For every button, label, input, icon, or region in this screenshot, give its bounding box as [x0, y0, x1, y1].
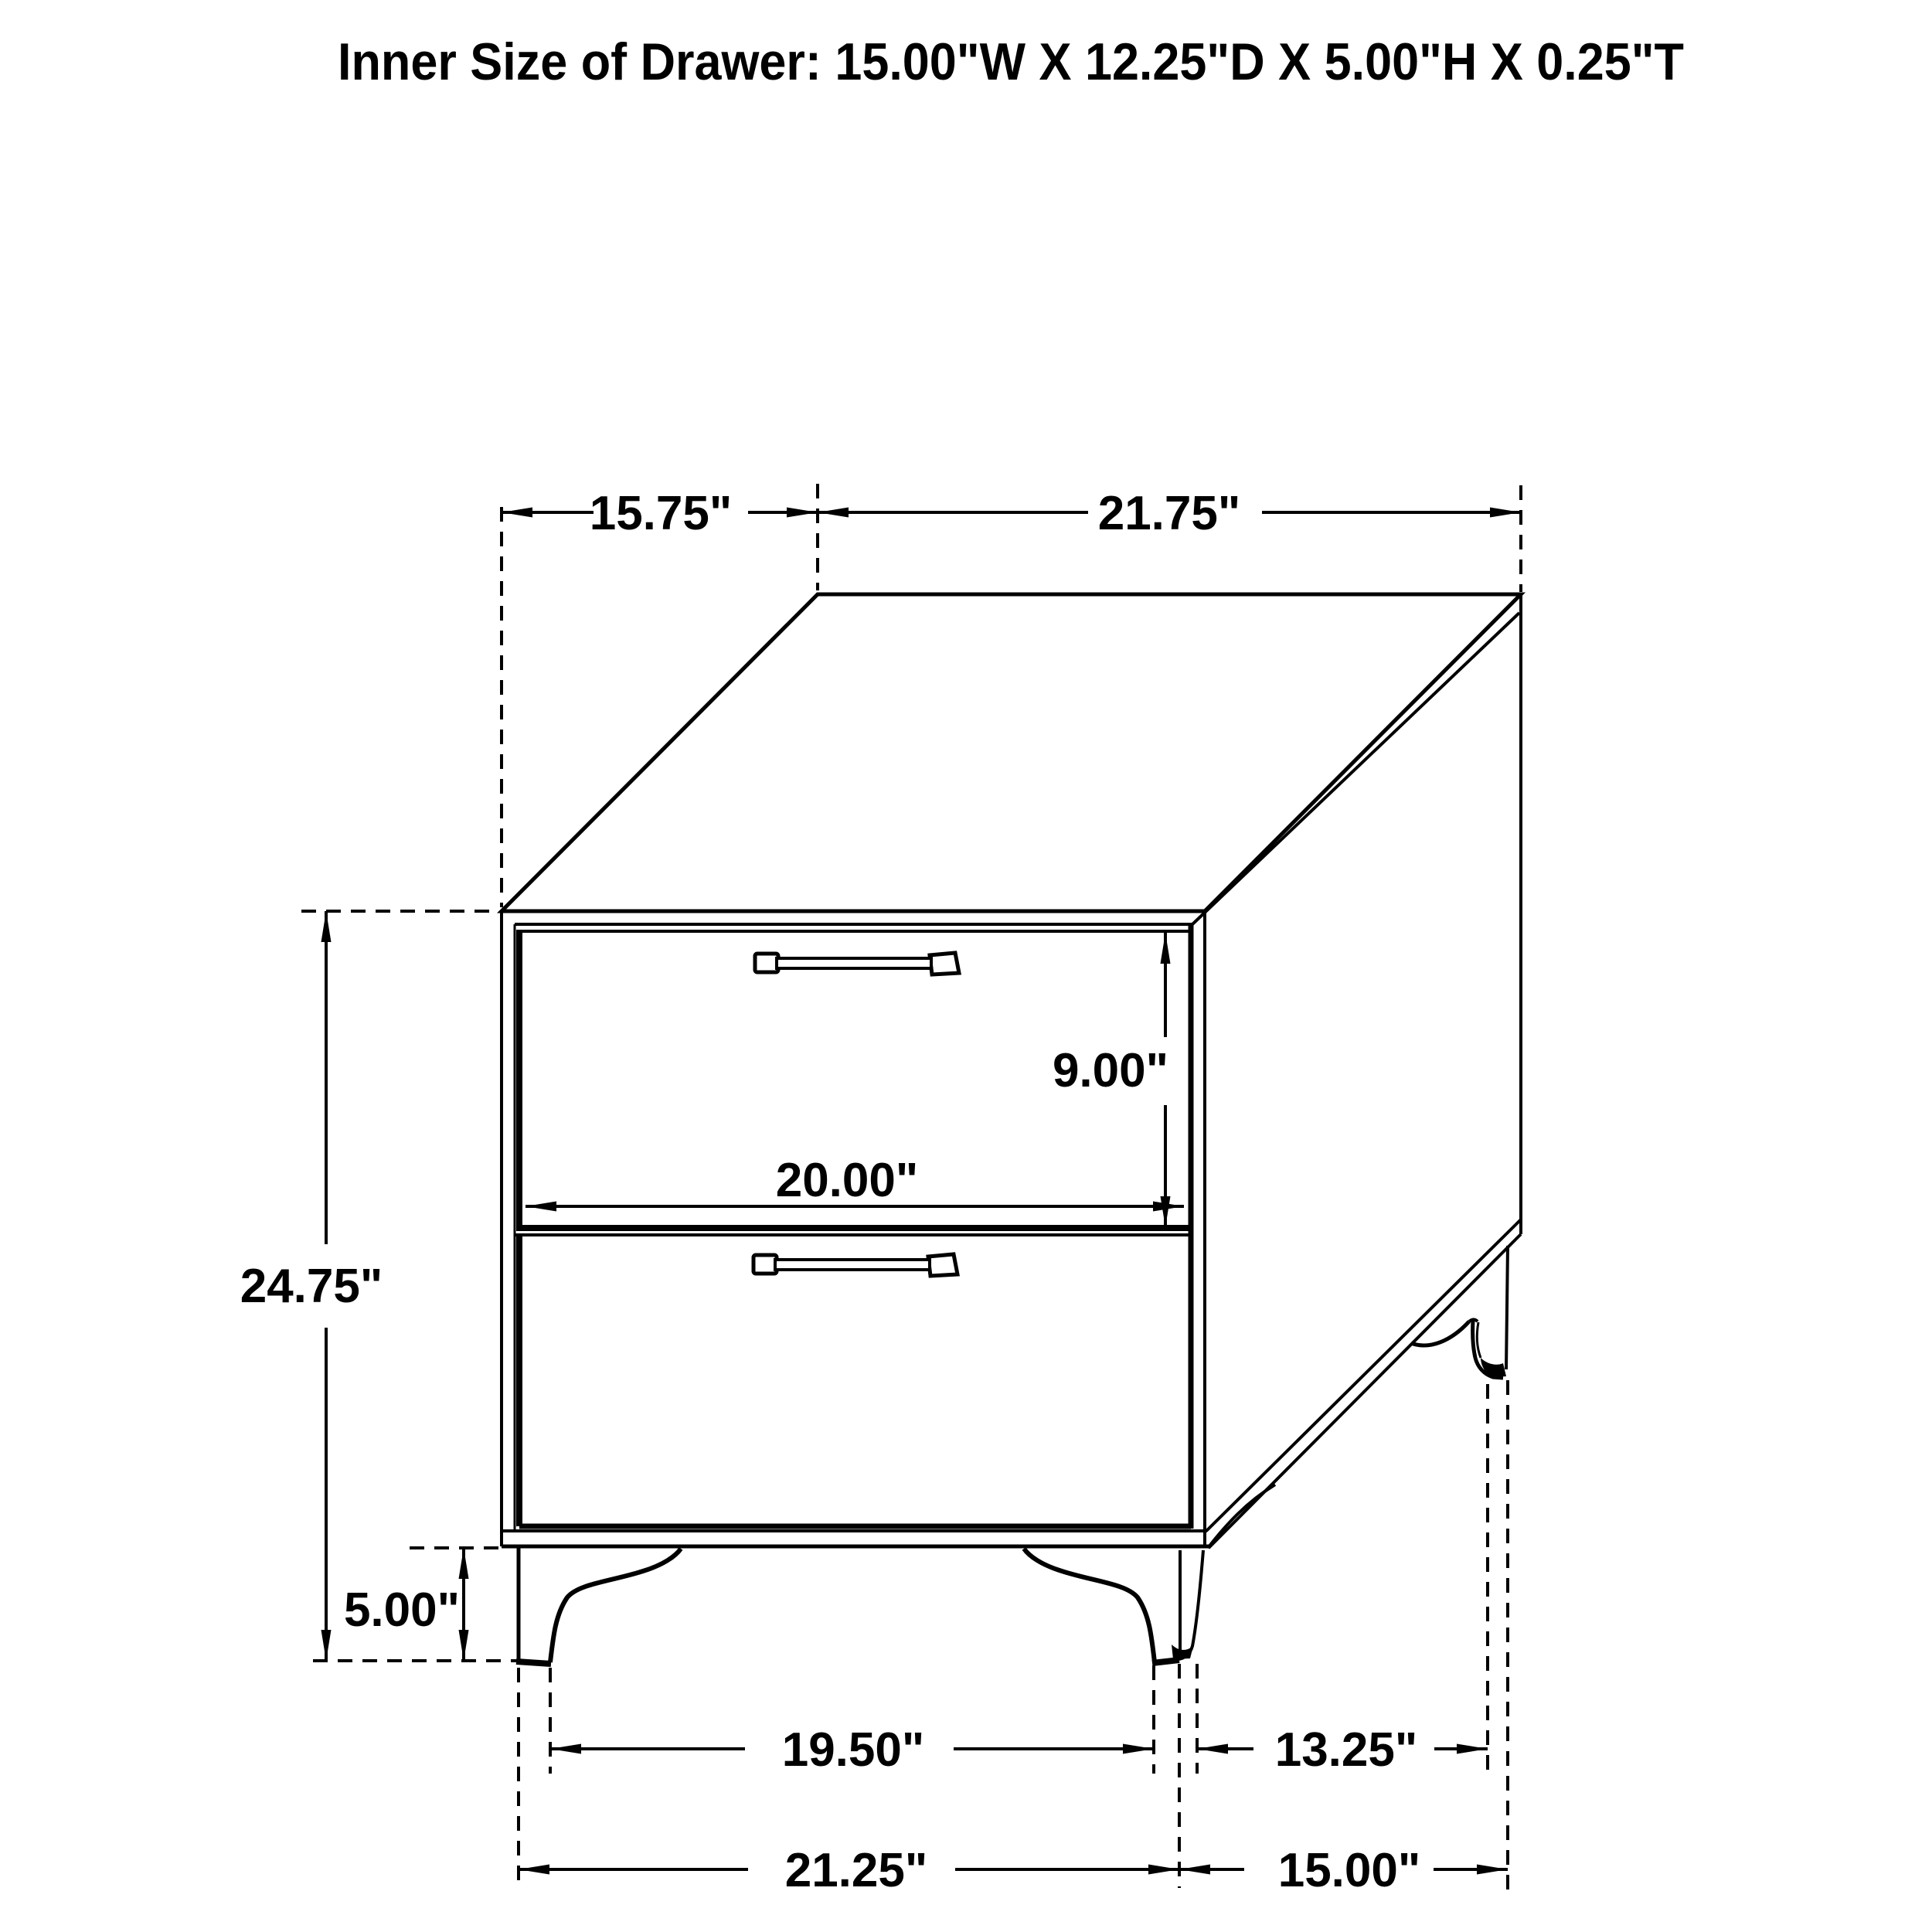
svg-text:21.75": 21.75" — [1098, 487, 1241, 540]
svg-text:24.75": 24.75" — [240, 1260, 383, 1313]
svg-text:9.00": 9.00" — [1053, 1044, 1168, 1097]
svg-text:21.25": 21.25" — [785, 1844, 928, 1897]
svg-text:20.00": 20.00" — [776, 1154, 919, 1207]
svg-text:15.00": 15.00" — [1278, 1844, 1421, 1897]
svg-text:5.00": 5.00" — [344, 1583, 460, 1637]
svg-text:13.25": 13.25" — [1275, 1723, 1418, 1777]
svg-text:15.75": 15.75" — [590, 487, 733, 540]
svg-text:Inner Size of Drawer: 15.00"W: Inner Size of Drawer: 15.00"W X 12.25"D … — [338, 32, 1684, 91]
svg-text:19.50": 19.50" — [782, 1723, 925, 1777]
